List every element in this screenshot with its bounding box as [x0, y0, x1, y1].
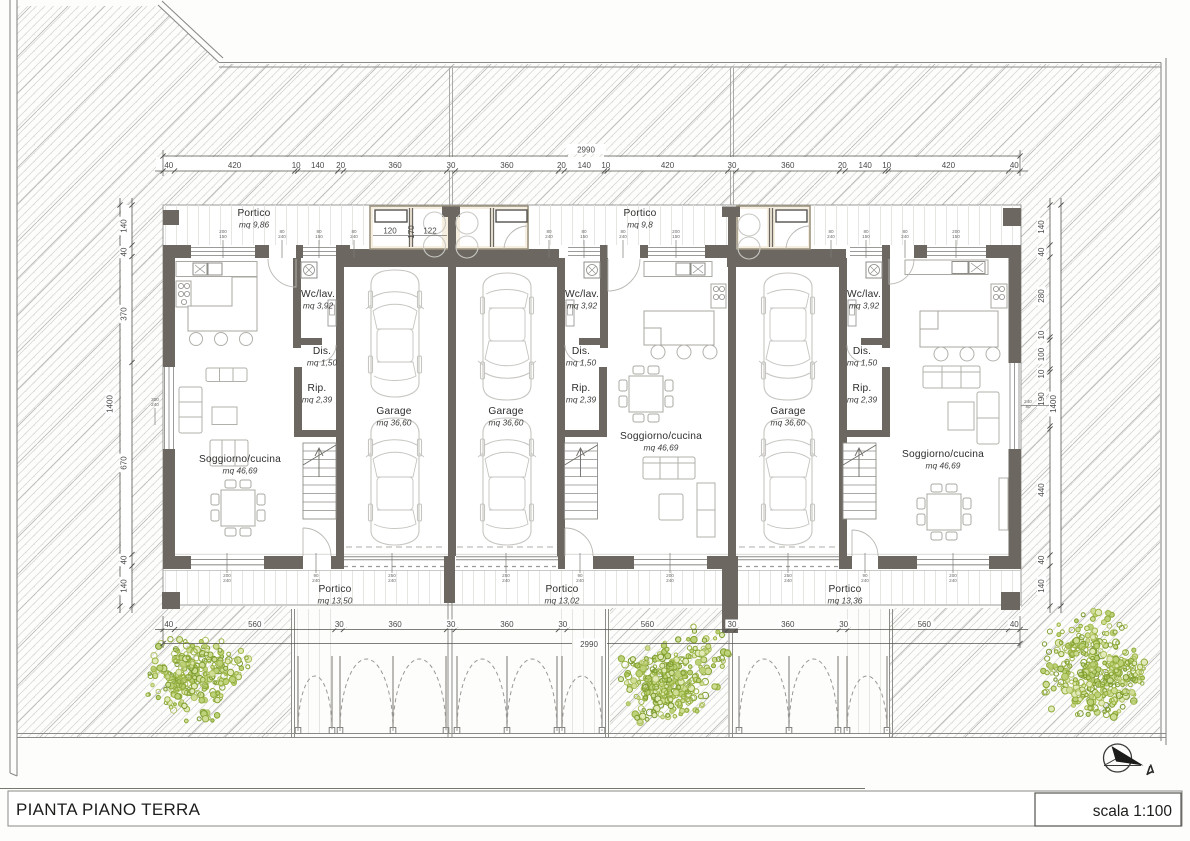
svg-text:360: 360 — [500, 161, 514, 170]
svg-text:40: 40 — [120, 555, 129, 564]
svg-text:Soggiorno/cucina: Soggiorno/cucina — [620, 431, 702, 442]
svg-text:240: 240 — [861, 578, 869, 583]
svg-text:mq 2,39: mq 2,39 — [847, 395, 878, 405]
svg-text:360: 360 — [500, 620, 514, 629]
svg-text:mq 9,8: mq 9,8 — [627, 220, 653, 230]
svg-text:mq 13,50: mq 13,50 — [318, 596, 353, 606]
svg-text:240: 240 — [576, 578, 584, 583]
svg-text:Dis.: Dis. — [313, 346, 331, 357]
svg-text:30: 30 — [728, 620, 737, 629]
svg-text:mq 46,69: mq 46,69 — [926, 461, 961, 471]
svg-text:mq 3,92: mq 3,92 — [567, 301, 598, 311]
svg-text:240: 240 — [784, 578, 792, 583]
svg-text:Wc/lav.: Wc/lav. — [565, 289, 599, 300]
svg-text:670: 670 — [120, 456, 129, 470]
svg-text:560: 560 — [248, 620, 262, 629]
svg-text:Rip.: Rip. — [853, 383, 872, 394]
svg-text:240: 240 — [666, 578, 674, 583]
svg-text:mq 13,36: mq 13,36 — [828, 596, 863, 606]
svg-text:122: 122 — [423, 227, 437, 236]
svg-text:240: 240 — [901, 234, 909, 239]
svg-text:360: 360 — [781, 161, 795, 170]
svg-text:190: 190 — [1037, 392, 1046, 406]
svg-text:240: 240 — [949, 578, 957, 583]
svg-text:mq 36,60: mq 36,60 — [771, 418, 806, 428]
svg-text:30: 30 — [447, 161, 456, 170]
svg-text:mq 3,92: mq 3,92 — [303, 301, 334, 311]
svg-text:140: 140 — [1037, 579, 1046, 593]
svg-text:20: 20 — [838, 161, 847, 170]
svg-text:40: 40 — [1037, 247, 1046, 256]
svg-text:440: 440 — [1037, 483, 1046, 497]
svg-text:Portico: Portico — [828, 584, 861, 595]
svg-text:Dis.: Dis. — [853, 346, 871, 357]
svg-text:10: 10 — [1037, 369, 1046, 378]
svg-text:80: 80 — [1025, 404, 1031, 409]
svg-text:100: 100 — [1037, 347, 1046, 361]
svg-text:240: 240 — [350, 234, 358, 239]
svg-text:Portico: Portico — [623, 208, 656, 219]
svg-text:mq 1,50: mq 1,50 — [307, 358, 338, 368]
svg-text:PIANTA PIANO TERRA: PIANTA PIANO TERRA — [16, 800, 201, 819]
svg-text:240: 240 — [388, 578, 396, 583]
svg-text:140: 140 — [578, 161, 592, 170]
svg-text:40: 40 — [120, 247, 129, 256]
svg-text:420: 420 — [942, 161, 956, 170]
svg-text:150: 150 — [862, 234, 870, 239]
svg-text:mq 36,60: mq 36,60 — [377, 418, 412, 428]
svg-text:mq 46,69: mq 46,69 — [223, 466, 258, 476]
svg-text:240: 240 — [545, 234, 553, 239]
svg-text:mq 13,02: mq 13,02 — [545, 596, 580, 606]
svg-text:140: 140 — [1037, 220, 1046, 234]
svg-text:40: 40 — [164, 161, 173, 170]
svg-text:40: 40 — [1037, 555, 1046, 564]
svg-text:360: 360 — [781, 620, 795, 629]
svg-text:30: 30 — [335, 620, 344, 629]
svg-text:Dis.: Dis. — [572, 346, 590, 357]
svg-text:mq 36,60: mq 36,60 — [489, 418, 524, 428]
svg-text:240: 240 — [827, 234, 835, 239]
svg-text:Garage: Garage — [376, 406, 411, 417]
svg-text:370: 370 — [120, 307, 129, 321]
svg-text:Garage: Garage — [488, 406, 523, 417]
svg-text:560: 560 — [641, 620, 655, 629]
svg-text:150: 150 — [952, 234, 960, 239]
svg-text:mq 2,39: mq 2,39 — [566, 395, 597, 405]
svg-text:Soggiorno/cucina: Soggiorno/cucina — [199, 454, 281, 465]
svg-text:140: 140 — [859, 161, 873, 170]
svg-text:150: 150 — [219, 234, 227, 239]
svg-text:10: 10 — [882, 161, 891, 170]
svg-text:280: 280 — [1037, 289, 1046, 303]
svg-text:150: 150 — [672, 234, 680, 239]
svg-text:240: 240 — [502, 578, 510, 583]
svg-text:560: 560 — [918, 620, 932, 629]
svg-text:240: 240 — [312, 578, 320, 583]
svg-text:Soggiorno/cucina: Soggiorno/cucina — [902, 449, 984, 460]
svg-text:420: 420 — [228, 161, 242, 170]
svg-text:30: 30 — [447, 620, 456, 629]
svg-text:1400: 1400 — [1049, 395, 1058, 413]
svg-text:2990: 2990 — [577, 146, 595, 155]
svg-text:360: 360 — [388, 620, 402, 629]
svg-text:Rip.: Rip. — [308, 383, 327, 394]
svg-text:40: 40 — [164, 620, 173, 629]
svg-text:120: 120 — [383, 227, 397, 236]
svg-text:170: 170 — [407, 225, 416, 239]
svg-text:1400: 1400 — [106, 395, 115, 413]
svg-text:20: 20 — [336, 161, 345, 170]
svg-text:mq 1,50: mq 1,50 — [566, 358, 597, 368]
svg-text:150: 150 — [315, 234, 323, 239]
svg-text:40: 40 — [1010, 620, 1019, 629]
svg-text:mq 2,39: mq 2,39 — [302, 395, 333, 405]
svg-text:140: 140 — [120, 579, 129, 593]
svg-text:scala 1:100: scala 1:100 — [1093, 803, 1173, 820]
svg-text:mq 46,69: mq 46,69 — [644, 443, 679, 453]
svg-text:Garage: Garage — [770, 406, 805, 417]
svg-text:40: 40 — [1010, 161, 1019, 170]
svg-text:240: 240 — [619, 234, 627, 239]
svg-text:30: 30 — [839, 620, 848, 629]
svg-text:10: 10 — [292, 161, 301, 170]
svg-text:Portico: Portico — [318, 584, 351, 595]
svg-text:420: 420 — [661, 161, 675, 170]
svg-text:Portico: Portico — [545, 584, 578, 595]
svg-text:mq 3,92: mq 3,92 — [849, 301, 880, 311]
svg-text:140: 140 — [311, 161, 325, 170]
svg-text:240: 240 — [223, 578, 231, 583]
svg-text:360: 360 — [388, 161, 402, 170]
svg-text:150: 150 — [580, 234, 588, 239]
svg-text:30: 30 — [558, 620, 567, 629]
svg-text:mq 9,86: mq 9,86 — [239, 220, 270, 230]
svg-text:Wc/lav.: Wc/lav. — [847, 289, 881, 300]
svg-text:10: 10 — [601, 161, 610, 170]
svg-text:10: 10 — [1037, 330, 1046, 339]
svg-text:240: 240 — [151, 402, 159, 407]
svg-text:Portico: Portico — [237, 208, 270, 219]
svg-text:240: 240 — [278, 234, 286, 239]
svg-text:140: 140 — [120, 219, 129, 233]
svg-text:Wc/lav.: Wc/lav. — [301, 289, 335, 300]
svg-text:2990: 2990 — [580, 640, 598, 649]
svg-text:Rip.: Rip. — [572, 383, 591, 394]
svg-text:20: 20 — [557, 161, 566, 170]
svg-text:mq 1,50: mq 1,50 — [847, 358, 878, 368]
svg-text:30: 30 — [728, 161, 737, 170]
